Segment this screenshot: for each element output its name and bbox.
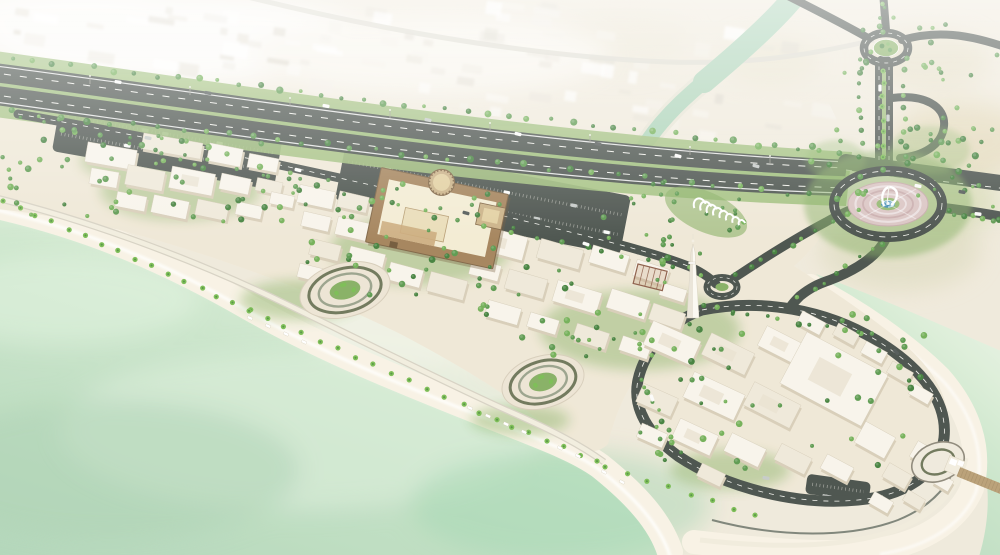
masterplan-rendering [0,0,1000,555]
wash-overlay [0,0,1000,555]
aerial-rendering-stage [0,0,1000,555]
